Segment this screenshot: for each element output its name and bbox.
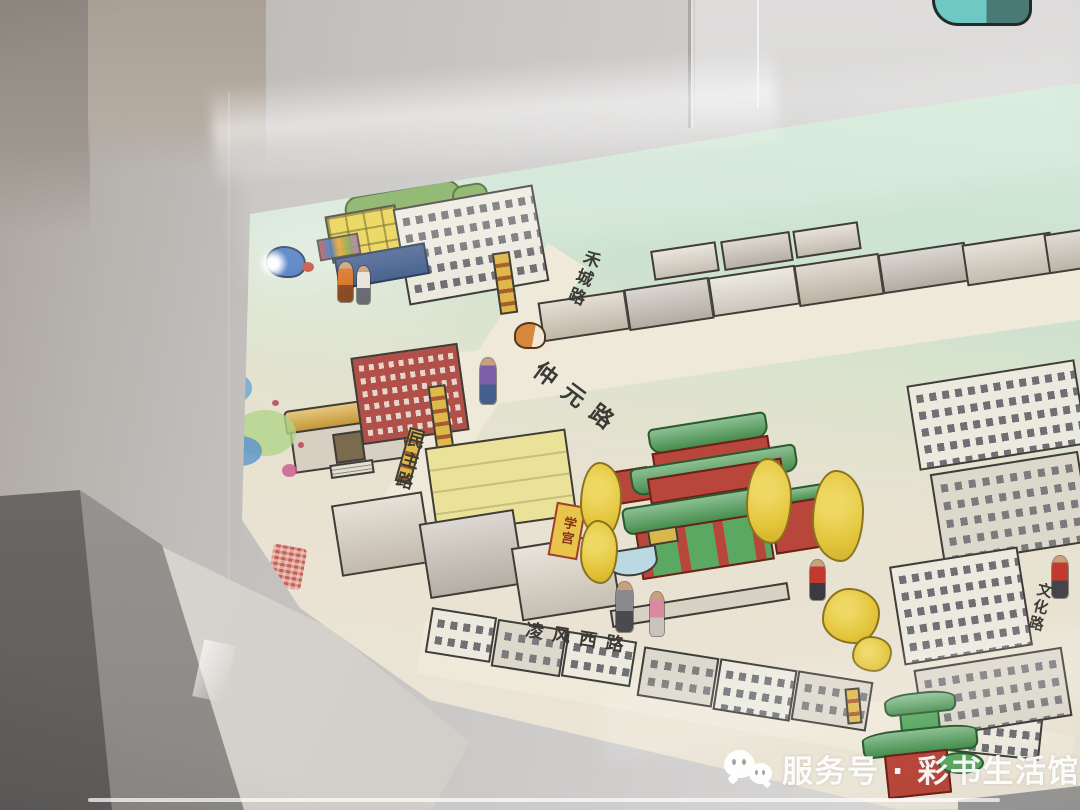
museum-display-photo: 学宫 禾城路 仲元路 民主路 凌风西路 文化路 (0, 0, 1080, 810)
dog (514, 322, 546, 349)
light-reflection-spot (258, 250, 288, 277)
wall-corner-shadow (0, 0, 90, 235)
rooftop-block (331, 491, 433, 577)
xuegong-plaque-text: 学宫 (555, 515, 579, 548)
pedestrian (616, 582, 633, 632)
wechat-icon (724, 750, 772, 788)
splash-dot (298, 442, 304, 448)
watermark-text: 服务号 · 彩书生活馆 (782, 746, 1080, 791)
splash-dot (282, 464, 297, 477)
pedestrian (480, 358, 496, 404)
pedestrian (810, 560, 825, 600)
pedestrian (650, 592, 664, 636)
ginkgo-tree (746, 458, 792, 544)
rooftop-block (1043, 226, 1080, 274)
rooftop-block (419, 509, 526, 599)
wechat-eye (732, 759, 736, 765)
watermark: 服务号 · 彩书生活馆 (724, 746, 1080, 791)
wechat-eye (762, 770, 765, 775)
watermark-underline (88, 798, 1000, 802)
partial-artwork-top-edge (932, 0, 1032, 26)
wechat-eye (742, 759, 746, 765)
ginkgo-tree (812, 470, 864, 562)
ginkgo-tree (580, 520, 618, 584)
splash-dot (272, 400, 279, 406)
wechat-eye (755, 770, 758, 775)
wechat-bubble-small (749, 763, 772, 784)
pedestrian (357, 266, 370, 304)
